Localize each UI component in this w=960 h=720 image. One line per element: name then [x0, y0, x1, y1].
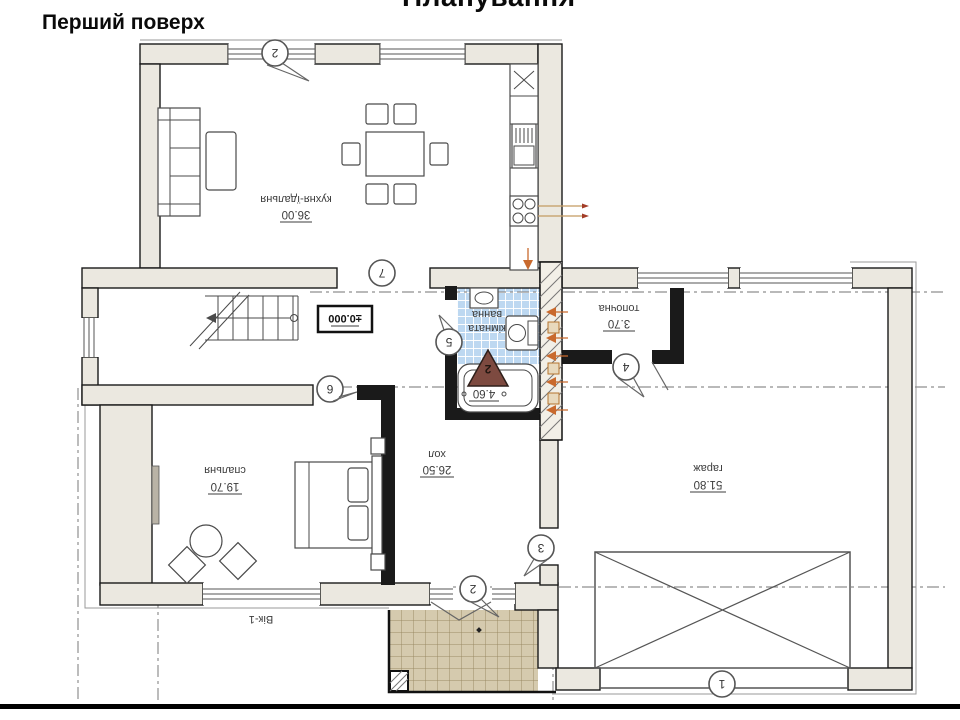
porch-dot	[476, 627, 482, 633]
svg-text:51.80: 51.80	[694, 478, 723, 490]
marker-bedroom-door: 6	[317, 376, 357, 402]
room-label-boiler: топочна 3.70	[598, 302, 640, 331]
svg-text:5: 5	[445, 335, 452, 349]
svg-text:7: 7	[378, 266, 385, 280]
room-label-kitchen: кухня-їдальня 36.00	[260, 193, 331, 222]
svg-text:кухня-їдальня: кухня-їдальня	[260, 193, 331, 205]
svg-text:4.60: 4.60	[473, 387, 495, 399]
dining-table	[342, 104, 448, 204]
window-tag: Вік-1	[249, 613, 273, 625]
entrance-porch	[389, 602, 556, 692]
svg-text:гараж: гараж	[693, 462, 723, 474]
svg-text:ванна: ванна	[471, 308, 502, 320]
sofa	[158, 108, 200, 216]
level-mark-value: ±0.000	[328, 312, 362, 324]
coffee-table	[206, 132, 236, 190]
svg-text:3: 3	[537, 541, 544, 555]
fridge-icon	[512, 124, 536, 168]
bed	[295, 438, 385, 570]
axis-lines	[78, 292, 945, 702]
floor-plan: ±0.000	[0, 0, 960, 720]
svg-text:топочна: топочна	[598, 302, 640, 314]
bedroom-sitting-area	[169, 525, 257, 583]
porch-column	[390, 671, 408, 691]
svg-text:кімната: кімната	[467, 322, 506, 334]
svg-text:3.70: 3.70	[608, 317, 630, 329]
level-mark: ±0.000	[318, 306, 372, 332]
slide: Планування Перший поверх	[0, 0, 960, 720]
marker-bath-door: 5	[436, 315, 462, 355]
entry-door-swing	[431, 602, 491, 620]
flue-shaft	[540, 262, 562, 440]
svg-text:26.50: 26.50	[423, 463, 452, 475]
room-label-hall: хол 26.50	[420, 448, 454, 477]
svg-text:4: 4	[622, 360, 629, 374]
marker-kitchen-axis: 7	[369, 260, 395, 286]
room-label-bedroom: спальня 19.70	[204, 464, 246, 494]
svg-text:2: 2	[469, 582, 476, 596]
radiator	[152, 466, 159, 524]
svg-text:2: 2	[271, 46, 278, 60]
marker-garage-axis: 1	[709, 671, 735, 697]
room-label-garage: гараж 51.80	[690, 462, 726, 492]
svg-text:спальня: спальня	[204, 464, 246, 476]
svg-text:хол: хол	[428, 448, 446, 460]
garage-gate	[595, 552, 850, 688]
svg-text:6: 6	[326, 382, 333, 396]
stove-icon	[510, 196, 538, 226]
toilet	[506, 316, 538, 350]
section-mark-number: 2	[484, 362, 491, 376]
svg-text:1: 1	[718, 677, 725, 691]
marker-boiler-door: 4	[613, 354, 644, 397]
boiler-door-swing	[652, 362, 668, 390]
staircase	[190, 292, 298, 349]
svg-text:36.00: 36.00	[282, 208, 311, 220]
slide-bottom-rule	[0, 704, 960, 709]
bathroom-sink	[470, 288, 498, 308]
svg-text:19.70: 19.70	[211, 480, 240, 492]
